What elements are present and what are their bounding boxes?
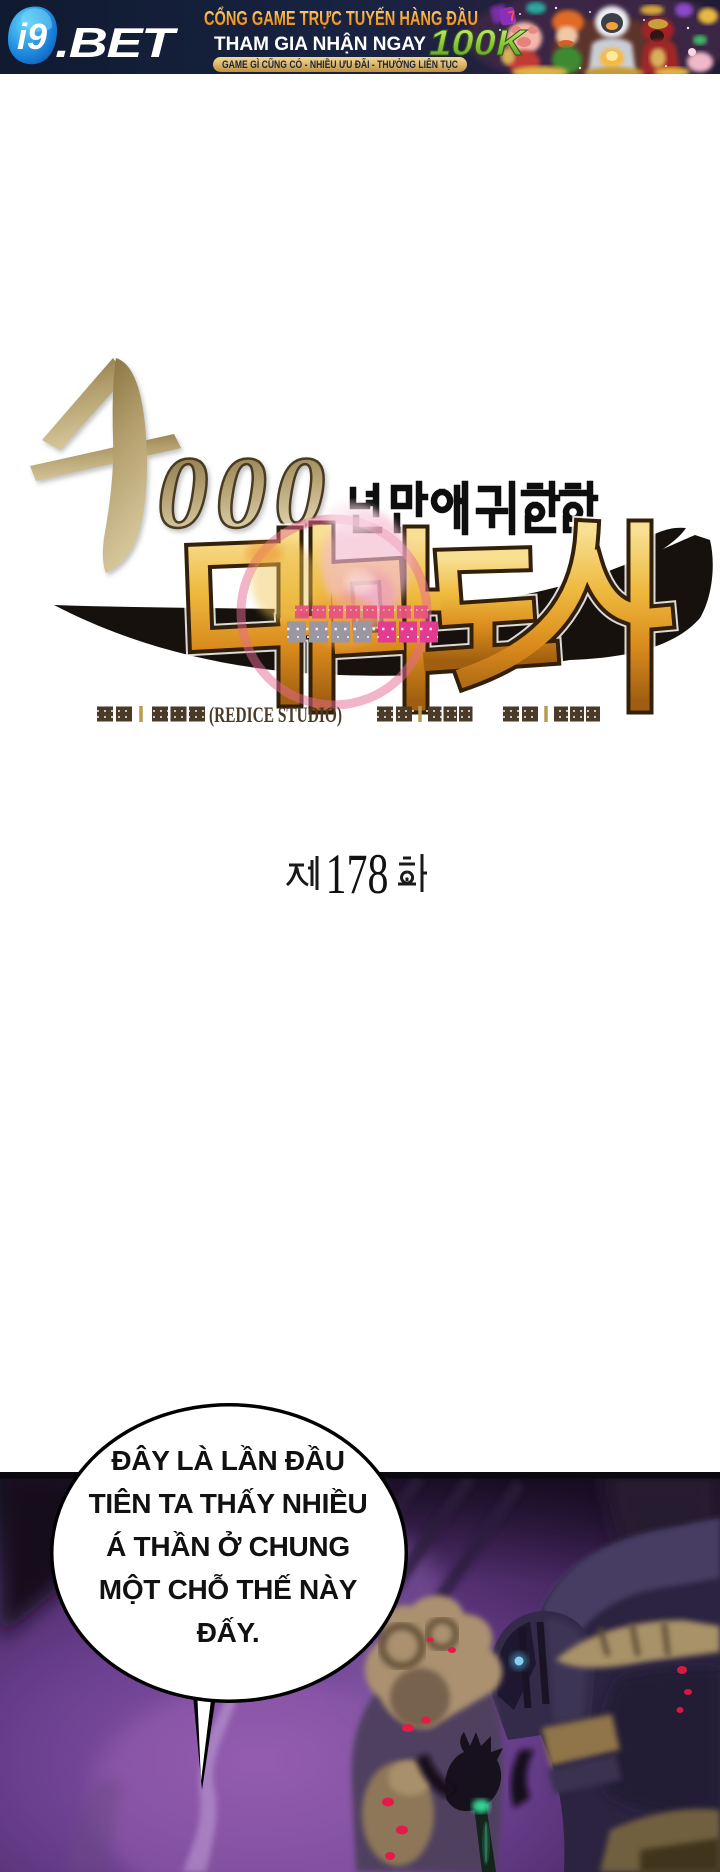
- svg-text:MỘT CHỖ THẾ NÀY: MỘT CHỖ THẾ NÀY: [99, 1573, 358, 1605]
- svg-text:.BET: .BET: [55, 19, 179, 66]
- svg-text:i9: i9: [17, 16, 47, 57]
- svg-text:GAME GÌ CŨNG CÓ - NHIỀU ƯU ĐÃI: GAME GÌ CŨNG CÓ - NHIỀU ƯU ĐÃI - THƯỞNG …: [222, 58, 458, 71]
- svg-text:100K: 100K: [429, 22, 528, 63]
- svg-text:000: 000: [157, 436, 333, 550]
- svg-text:ĐÂY LÀ LẦN ĐẦU: ĐÂY LÀ LẦN ĐẦU: [111, 1445, 344, 1476]
- svg-text:TIÊN TA THẤY NHIỀU: TIÊN TA THẤY NHIỀU: [89, 1488, 368, 1519]
- svg-text:(REDICE STUDIO): (REDICE STUDIO): [209, 702, 342, 727]
- svg-text:178: 178: [326, 843, 389, 906]
- svg-text:THAM GIA NHẬN NGAY: THAM GIA NHẬN NGAY: [214, 33, 426, 55]
- svg-text:ĐẤY.: ĐẤY.: [197, 1617, 260, 1648]
- svg-text:Á THẦN Ở CHUNG: Á THẦN Ở CHUNG: [106, 1530, 350, 1562]
